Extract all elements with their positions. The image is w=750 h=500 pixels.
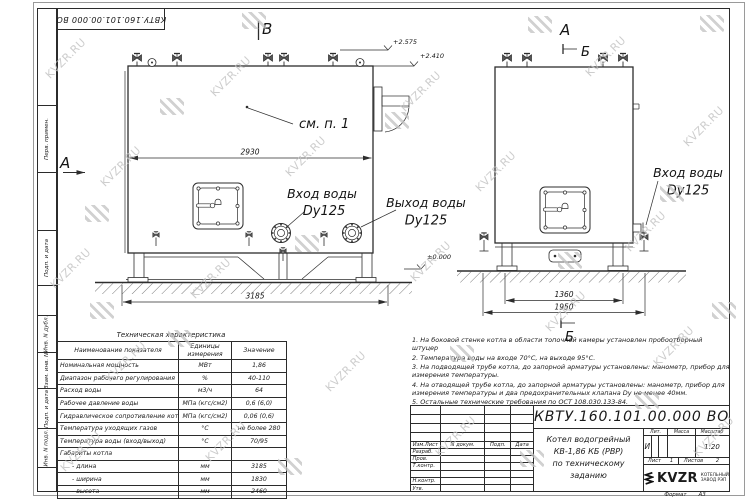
left-strip-box-inv-dubl: Инв. N дубл.: [37, 315, 58, 353]
table-row: Габариты котла: [58, 448, 287, 461]
table-row: Диапазон рабочего регулирования%40-110: [58, 372, 287, 385]
lit-mass-scale-values: И 1:20: [644, 436, 729, 458]
table-row: - длинамм3185: [58, 460, 287, 473]
note-item: 3. На подводящей трубе котла, до запорно…: [412, 363, 730, 380]
title-block-signatures: Изм.Лист N докум. Подп. Дата Разраб. Про…: [411, 406, 534, 491]
left-strip-box-inv-podl: Инв. N подл.: [37, 428, 58, 468]
left-strip-box: [37, 467, 58, 492]
tech-table-header-row: Наименование показателя Единицы измерени…: [58, 342, 287, 360]
scale-value: 1:20: [696, 436, 728, 457]
tech-table: Наименование показателя Единицы измерени…: [57, 341, 287, 499]
table-row: Номинальная мощностьМВт1,86: [58, 360, 287, 373]
table-row: Гидравлическое сопротивление котлаМПа (к…: [58, 410, 287, 423]
note-item: 1. На боковой стенке котла в области топ…: [412, 336, 730, 353]
title-block: Изм.Лист N докум. Подп. Дата Разраб. Про…: [410, 405, 730, 492]
left-strip-box: [37, 285, 58, 316]
lit-mass-scale-header: Лит. Масса Масштаб: [644, 429, 729, 436]
table-row: - ширинамм1830: [58, 473, 287, 486]
company-logo: KVZR КОТЕЛЬНЫЙ ЗАВОД РЭП: [644, 465, 729, 491]
left-strip-box-vzam-inv: Взам. инв. N: [37, 352, 58, 389]
top-rotated-stamp: КВТУ.160.101.00.000 ВО: [57, 8, 165, 30]
document-title: Котел водогрейный КВ-1,86 КБ (РВР) по те…: [534, 429, 644, 491]
left-strip-box-podp-data-2: Подп. и дата: [37, 388, 58, 429]
lit-value: И: [644, 436, 652, 457]
left-strip-box-perv-primen: Перв. примен.: [37, 105, 58, 173]
logo-text: KVZR: [657, 471, 698, 486]
left-strip-box: [37, 8, 58, 106]
table-row: - высотамм2460: [58, 485, 287, 498]
top-stamp-number: КВТУ.160.101.00.000 ВО: [56, 15, 166, 24]
sheet-count-row: Лист 1 Листов 2: [644, 458, 729, 465]
mass-value: [668, 436, 696, 457]
left-strip-box: [37, 172, 58, 231]
drawing-sheet: КВТУ.160.101.00.000 ВО Перв. примен. Под…: [0, 0, 750, 500]
technical-notes: 1. На боковой стенке котла в области топ…: [412, 336, 730, 408]
table-row: Температура воды (вход/выход)°С70/95: [58, 435, 287, 448]
note-item: 4. На отводящей трубе котла, до запорной…: [412, 381, 730, 398]
note-item: 2. Температура воды на входе 70°С, на вы…: [412, 354, 730, 362]
table-row: Температура уходящих газов°Сне более 280: [58, 422, 287, 435]
table-row: Рабочее давление водыМПа (кгс/см2)0,6 (6…: [58, 397, 287, 410]
document-number: КВТУ.160.101.00.000 ВО: [534, 406, 729, 429]
tech-table-title: Техническая характеристика: [57, 331, 285, 339]
left-strip-box-podp-data-1: Подп. и дата: [37, 230, 58, 286]
spring-logo-icon: [644, 470, 654, 487]
logo-caption: КОТЕЛЬНЫЙ ЗАВОД РЭП: [701, 473, 729, 484]
table-row: Расход водым3/ч64: [58, 385, 287, 398]
signature-header-row: Изм.Лист N докум. Подп. Дата: [411, 442, 533, 449]
format-note: Формат А3: [640, 492, 730, 498]
